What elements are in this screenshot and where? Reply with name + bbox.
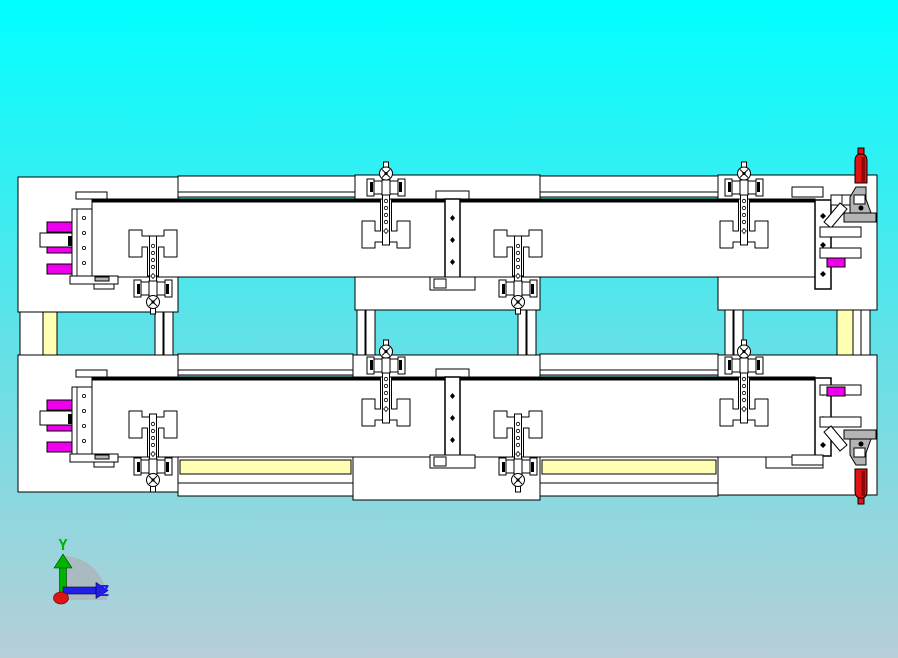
support-leg[interactable] (155, 310, 173, 356)
cad-viewport[interactable]: Y Z (0, 0, 898, 658)
support-leg[interactable] (357, 309, 375, 355)
red-handle-pin (855, 469, 867, 498)
red-handle-pin (855, 154, 867, 183)
yellow-spacer-leg (43, 311, 57, 355)
toggle-clamp-base (844, 430, 876, 439)
support-leg (20, 311, 43, 355)
yellow-spacer-strip (542, 460, 716, 474)
clamp-rod[interactable] (383, 191, 390, 245)
support-leg (861, 310, 870, 355)
x-axis-origin[interactable] (54, 592, 69, 604)
yellow-spacer-strip (180, 460, 351, 474)
y-axis-label: Y (58, 536, 67, 554)
assembly-drawing[interactable]: Y Z (0, 0, 898, 658)
clamp-rod[interactable] (741, 369, 748, 423)
clamp-rod[interactable] (741, 191, 748, 245)
toggle-clamp-base (844, 213, 876, 222)
yellow-spacer-leg (837, 310, 853, 355)
magenta-block (827, 387, 845, 396)
magenta-block (827, 258, 845, 267)
viewport-background (0, 0, 898, 658)
z-axis-label: Z (100, 582, 109, 600)
support-leg (853, 310, 861, 355)
clamp-rod[interactable] (383, 369, 390, 423)
support-leg[interactable] (518, 309, 536, 355)
